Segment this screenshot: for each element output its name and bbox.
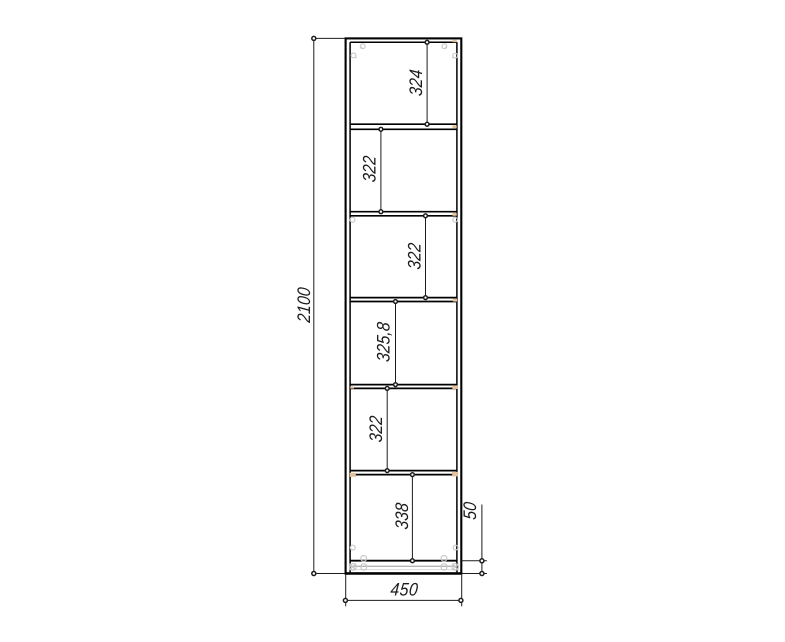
svg-text:325,8: 325,8 (374, 321, 394, 363)
svg-text:324: 324 (406, 69, 426, 97)
svg-text:338: 338 (392, 502, 412, 531)
svg-text:2100: 2100 (294, 286, 314, 324)
svg-text:322: 322 (366, 414, 386, 443)
svg-text:322: 322 (405, 242, 425, 271)
svg-text:322: 322 (360, 154, 380, 183)
svg-text:450: 450 (390, 580, 420, 600)
svg-text:50: 50 (460, 501, 480, 521)
